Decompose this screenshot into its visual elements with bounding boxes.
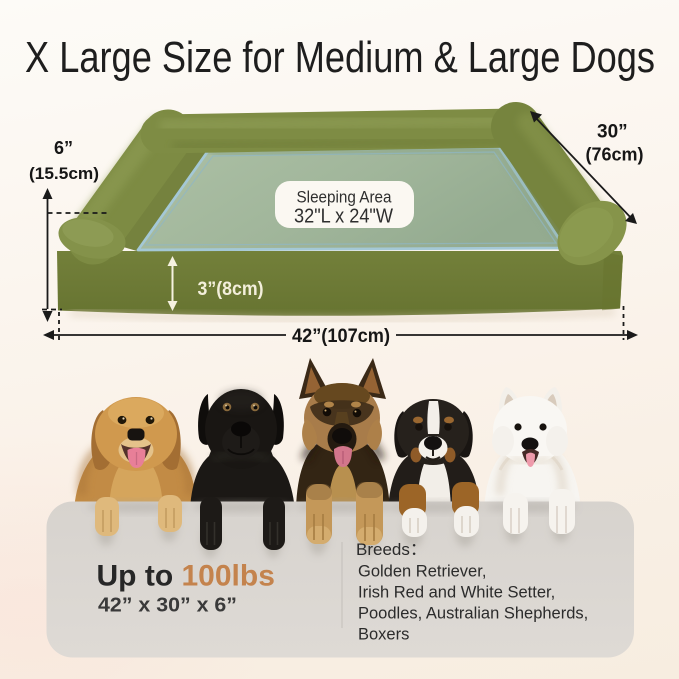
svg-text:30”: 30”	[597, 122, 628, 143]
svg-text:Boxers: Boxers	[358, 626, 409, 644]
svg-text:Up to 100lbs: Up to 100lbs	[97, 560, 275, 593]
svg-text:X Large Size for Medium & Larg: X Large Size for Medium & Large Dogs	[25, 33, 655, 82]
svg-text:(76cm): (76cm)	[586, 145, 644, 165]
svg-text:(15.5cm): (15.5cm)	[29, 165, 99, 183]
svg-text:32"L x 24"W: 32"L x 24"W	[294, 205, 394, 228]
svg-text:Irish Red and White Setter,: Irish Red and White Setter,	[358, 584, 555, 602]
svg-text:Poodles, Australian Shepherds,: Poodles, Australian Shepherds,	[358, 605, 588, 623]
svg-text:3”(8cm): 3”(8cm)	[198, 279, 264, 300]
svg-text:6”: 6”	[54, 138, 73, 158]
svg-text:42”(107cm): 42”(107cm)	[292, 326, 390, 347]
svg-text:42” x 30” x 6”: 42” x 30” x 6”	[98, 595, 237, 617]
svg-text:Breeds：: Breeds：	[356, 540, 427, 559]
svg-text:Golden Retriever,: Golden Retriever,	[358, 563, 486, 581]
